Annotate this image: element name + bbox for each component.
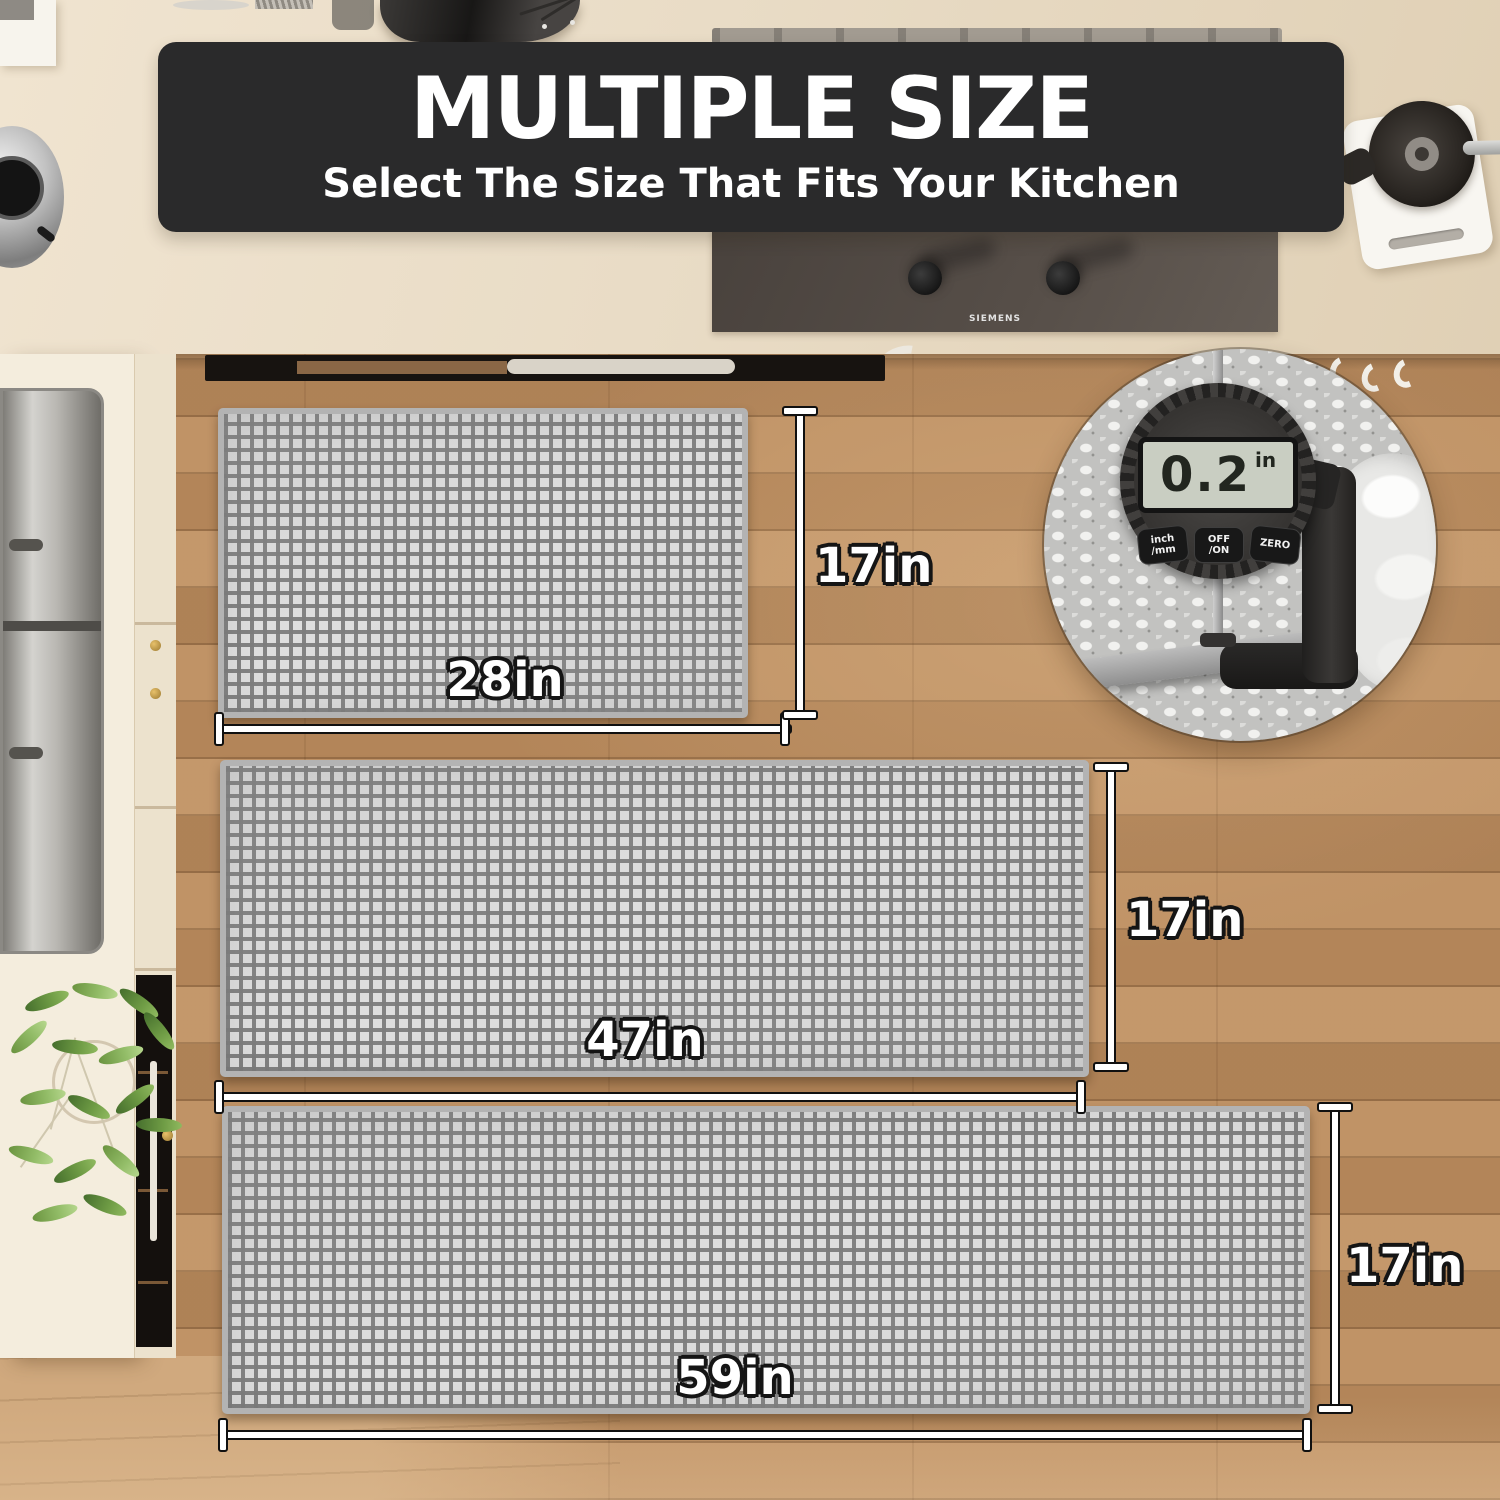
moka-pot-lid — [0, 156, 44, 220]
cabinet-seam — [135, 968, 176, 971]
grinder-handle — [1463, 140, 1500, 155]
gauge-button-label: /ON — [1209, 545, 1230, 557]
gauge-button-inch-mm: inch /mm — [1136, 524, 1189, 565]
cabinet-seam — [135, 622, 176, 625]
gauge-dial: 0.2 in inch /mm OFF /ON ZERO — [1120, 383, 1316, 579]
gauge-spindle — [1213, 577, 1223, 637]
plant-leaf — [7, 1142, 55, 1168]
toe-kick-wood — [297, 361, 507, 374]
saucer — [173, 0, 249, 10]
dimension-cap — [782, 710, 818, 720]
dimension-cap — [214, 1080, 224, 1114]
dimension-cap — [782, 406, 818, 416]
dimension-cap — [1093, 1062, 1129, 1072]
gauge-button-label: /mm — [1151, 544, 1177, 558]
plant-leaf — [139, 1009, 178, 1054]
iron-light — [570, 20, 575, 25]
toe-kick-trim — [507, 359, 735, 374]
height-label-small: 17in — [815, 538, 932, 594]
gauge-button-off-on: OFF /ON — [1194, 527, 1244, 563]
grinder-hub — [1402, 135, 1441, 174]
utensil-holder — [332, 0, 374, 30]
plant-leaf — [51, 1155, 98, 1188]
dimension-cap — [218, 1418, 228, 1452]
dimension-cap — [214, 712, 224, 746]
banner-subtitle: Select The Size That Fits Your Kitchen — [322, 164, 1179, 204]
dimension-cap — [1076, 1080, 1086, 1114]
plant-leaf — [7, 1016, 51, 1057]
shelf-edge — [138, 1281, 168, 1284]
cabinet-knob — [150, 640, 161, 651]
gauge-lcd-display: 0.2 in — [1138, 437, 1298, 513]
width-dimension-line-medium — [218, 1092, 1086, 1102]
appliance-divider — [3, 621, 101, 631]
width-label-large: 59in — [615, 1350, 855, 1406]
height-dimension-line-large — [1330, 1106, 1340, 1412]
coffee-machine-top — [0, 0, 34, 20]
grinder-hole — [1414, 146, 1430, 162]
thickness-inset-circle: 0.2 in inch /mm OFF /ON ZERO — [1044, 349, 1436, 741]
dimension-cap — [1317, 1102, 1353, 1112]
iron-light — [542, 24, 547, 29]
cooktop: SIEMENS — [712, 228, 1278, 332]
utensil-rack — [255, 0, 313, 9]
cooktop-brand: SIEMENS — [712, 314, 1278, 324]
dimension-cap — [1317, 1404, 1353, 1414]
moka-pot — [0, 126, 64, 268]
stainless-appliance — [0, 388, 104, 954]
plant-leaf — [23, 987, 71, 1016]
width-dimension-line-large — [222, 1430, 1312, 1440]
plant-leaf — [71, 980, 119, 1002]
cooktop-knob-right — [1046, 261, 1080, 295]
plant-leaf — [31, 1201, 79, 1226]
coffee-grinder — [1341, 103, 1495, 272]
width-label-medium: 47in — [525, 1012, 765, 1068]
dimension-cap — [1302, 1418, 1312, 1452]
title-banner: MULTIPLE SIZE Select The Size That Fits … — [158, 42, 1344, 232]
gauge-reading-value: 0.2 — [1160, 451, 1251, 499]
gauge-button-label: OFF — [1208, 534, 1230, 546]
cabinet-seam — [135, 806, 176, 809]
grinder-display — [1388, 227, 1465, 250]
height-dimension-line-medium — [1106, 764, 1116, 1070]
gauge-button-label: ZERO — [1259, 538, 1290, 553]
moka-pot-handle — [36, 225, 57, 244]
width-label-small: 28in — [385, 652, 625, 708]
coffee-machine — [0, 0, 56, 66]
grinder-plate — [1361, 93, 1482, 214]
gauge-reading-unit: in — [1255, 448, 1276, 472]
product-size-infographic: SIEMENS MULTIPLE SIZE Select The Size Th… — [0, 0, 1500, 1500]
clothes-iron — [380, 0, 580, 42]
height-label-large: 17in — [1346, 1238, 1463, 1294]
plant-leaf — [136, 1117, 182, 1133]
banner-title: MULTIPLE SIZE — [410, 66, 1092, 152]
dimension-cap — [1093, 762, 1129, 772]
plant-leaf — [81, 1190, 129, 1220]
gauge-button-zero: ZERO — [1248, 524, 1301, 565]
gauge-anvil — [1200, 633, 1236, 647]
plant-leaf — [99, 1141, 143, 1181]
cooktop-knob-left — [908, 261, 942, 295]
appliance-handle — [9, 747, 43, 759]
height-label-medium: 17in — [1126, 892, 1243, 948]
height-dimension-line-small — [795, 408, 805, 718]
width-dimension-line-small — [218, 724, 792, 734]
toe-kick-slot — [205, 355, 885, 381]
potted-plant — [0, 978, 185, 1253]
cabinet-knob — [150, 688, 161, 699]
appliance-handle — [9, 539, 43, 551]
